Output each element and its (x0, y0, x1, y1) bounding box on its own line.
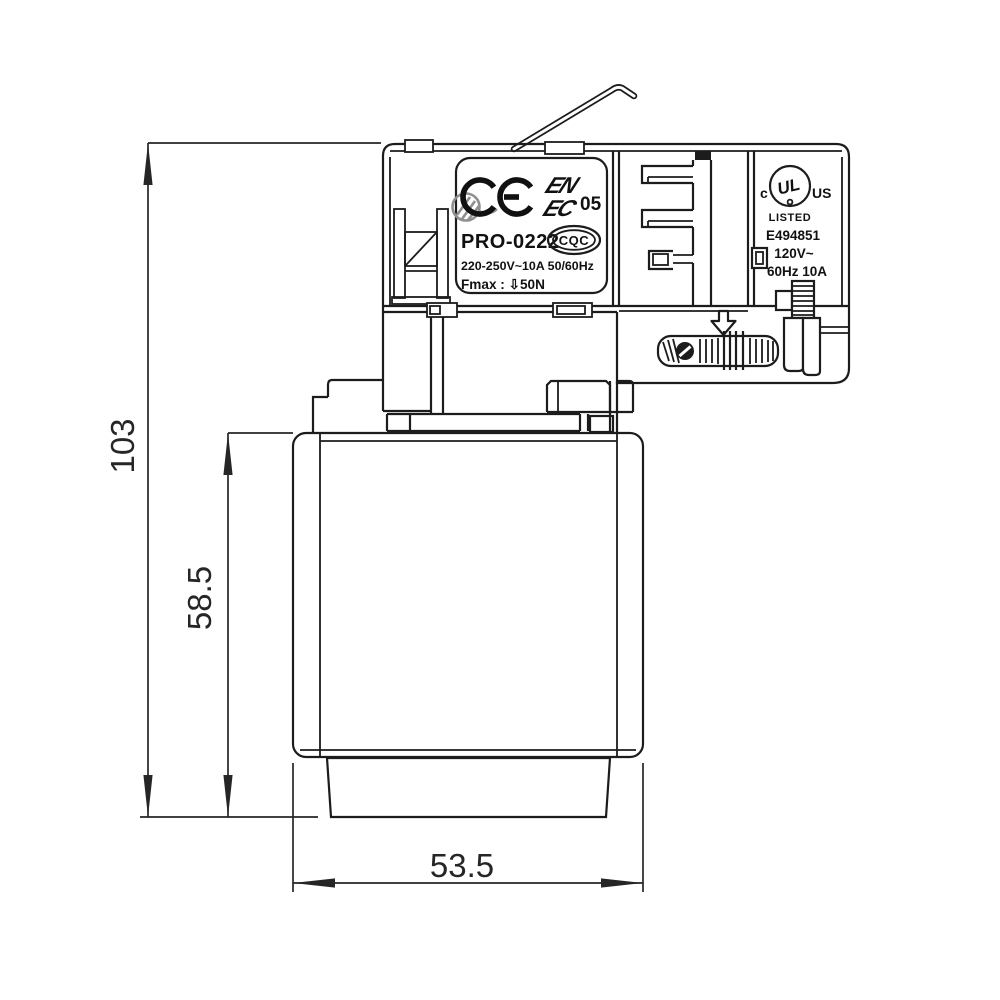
technical-drawing-page: 103 58.5 53.5 (0, 0, 1000, 1000)
dimension-body-height: 58.5 (181, 433, 293, 817)
dim-103-label: 103 (104, 418, 141, 473)
arrowhead-down (223, 775, 232, 817)
track-adapter-dimension-drawing: 103 58.5 53.5 (0, 0, 1000, 1000)
enec-number: 05 (580, 194, 602, 215)
ul-c-text: c (760, 185, 768, 201)
arrowhead-left (293, 878, 335, 887)
dial-section (658, 311, 778, 370)
ul-label: UL c US LISTED E494851 120V~ 60Hz 10A (752, 166, 831, 279)
latch-mechanism (776, 281, 848, 375)
dim-58-5-label: 58.5 (181, 566, 218, 630)
arrowhead-down (143, 775, 152, 817)
adapter-body (293, 433, 643, 817)
band-tab-left (427, 303, 457, 317)
dim-53-5-label: 53.5 (430, 847, 494, 884)
ul-listed-text: LISTED (769, 212, 812, 224)
mounting-neck (313, 380, 633, 433)
ul-us-text: US (812, 185, 831, 201)
ul-file-number: E494851 (766, 228, 821, 243)
enec-logo-icon: EN EC 05 (531, 173, 602, 222)
enec-line2: EC (539, 196, 581, 222)
arrowhead-up (223, 433, 232, 475)
ribbed-release-button (792, 281, 814, 318)
top-slot-left (405, 140, 433, 152)
dimension-overall-height: 103 (104, 143, 381, 817)
ul-logo-icon: UL (770, 166, 810, 206)
contact-prongs (642, 160, 711, 306)
enec-line1: EN (541, 173, 583, 199)
adjustment-thumbwheel (658, 331, 778, 370)
top-contact-block (695, 151, 711, 160)
latch-foot-left (784, 318, 803, 371)
ul-frequency-current: 60Hz 10A (767, 264, 827, 279)
top-slot-right (545, 142, 584, 154)
body-bottom-cap (327, 758, 610, 817)
arrowhead-right (601, 878, 643, 887)
side-tab (752, 248, 767, 268)
ul-mark-text: UL (775, 175, 802, 199)
prong-top (642, 166, 693, 183)
dimension-body-width: 53.5 (293, 763, 643, 892)
model-text: PRO-0222 (461, 231, 560, 253)
latch-spring-pocket (392, 209, 450, 304)
latch-foot-right (803, 318, 820, 375)
rating-text: 220-250V~10A 50/60Hz (461, 259, 594, 273)
ul-voltage: 120V~ (774, 246, 814, 261)
flange-plate (387, 414, 580, 431)
track-adapter-head: EN EC 05 PRO-0222 CQC 220-250V~10A 50/60… (383, 140, 849, 413)
arrowhead-up (143, 143, 152, 185)
cqc-text: CQC (559, 233, 590, 248)
label-plate: EN EC 05 PRO-0222 CQC 220-250V~10A 50/60… (453, 158, 608, 293)
prong-middle (642, 210, 693, 227)
band-tab-right (553, 303, 592, 317)
central-stem (431, 312, 443, 413)
release-lever (514, 87, 634, 149)
fmax-text: Fmax : ⇩50N (461, 277, 545, 292)
